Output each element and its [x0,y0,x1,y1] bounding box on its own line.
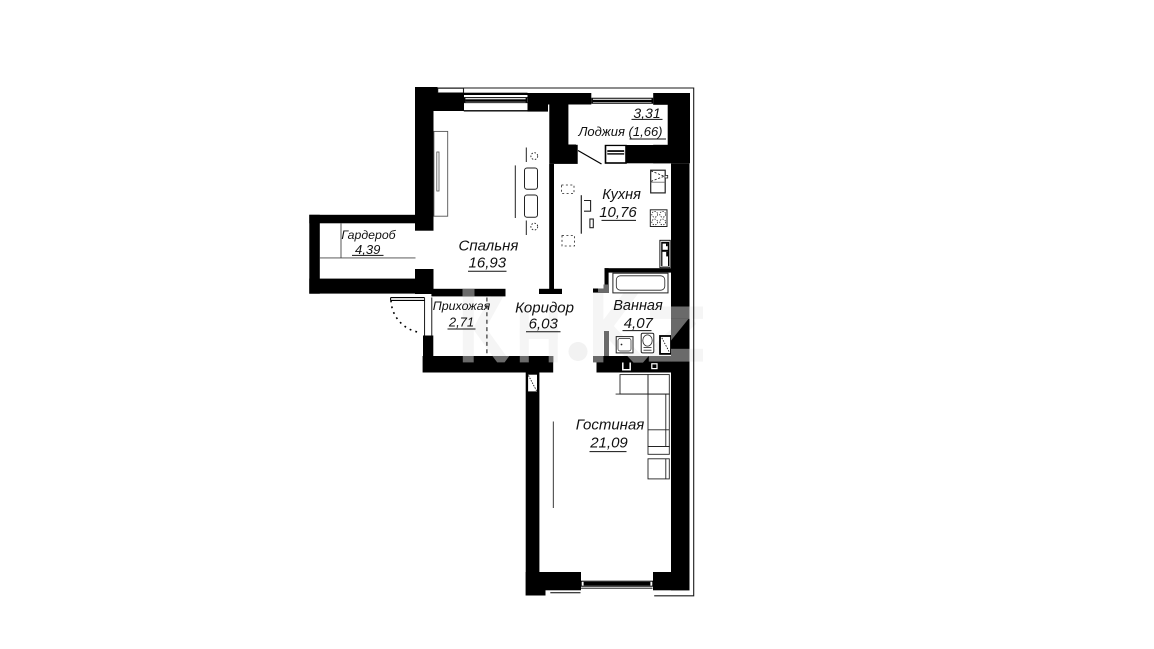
svg-text:Лоджия (1,66): Лоджия (1,66) [577,124,662,139]
svg-text:16,93: 16,93 [469,255,507,272]
svg-text:4,39: 4,39 [355,242,380,257]
svg-text:21,09: 21,09 [589,434,628,451]
svg-text:Коридор: Коридор [515,299,574,316]
svg-text:Гардероб: Гардероб [341,228,396,242]
svg-text:2,71: 2,71 [448,314,474,329]
svg-text:4,07: 4,07 [624,315,654,332]
svg-text:Ванная: Ванная [613,298,663,314]
svg-text:10,76: 10,76 [599,204,637,221]
svg-text:6,03: 6,03 [529,316,559,333]
svg-text:Прихожая: Прихожая [433,299,491,313]
svg-text:Кухня: Кухня [602,187,641,203]
svg-text:3,31: 3,31 [633,105,660,121]
svg-text:Спальня: Спальня [459,237,519,254]
svg-text:Гостиная: Гостиная [576,417,645,434]
